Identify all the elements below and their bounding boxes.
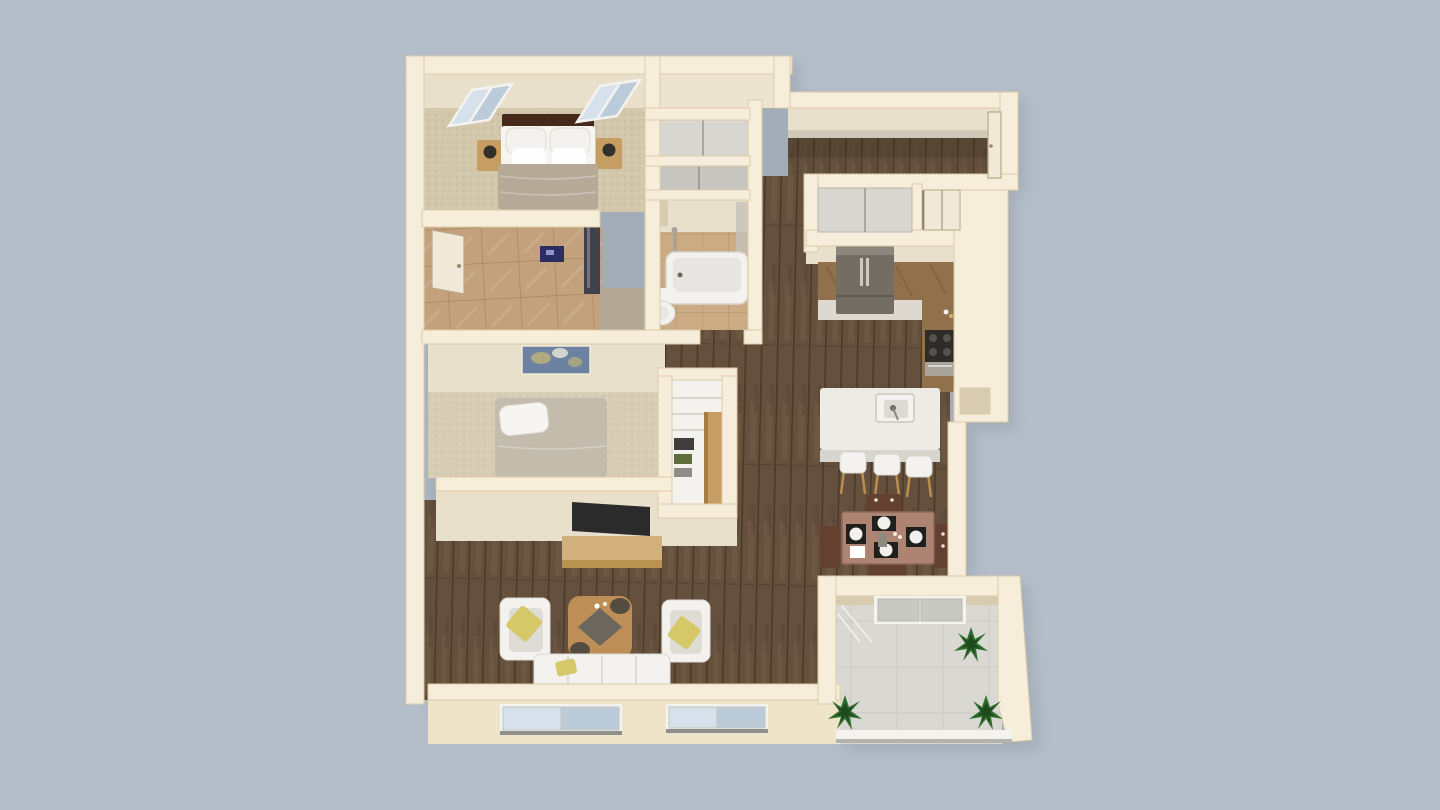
table-lamp-right: [603, 144, 616, 157]
wall-top-master: [406, 56, 792, 74]
clothes-dark: [674, 438, 694, 450]
wall-utility-east: [774, 56, 790, 108]
chair-knob: [941, 544, 945, 548]
wall-dining-east: [948, 422, 966, 584]
table-candle: [898, 535, 902, 539]
living-south-wall-face: [428, 700, 840, 744]
table-center-items: [878, 533, 887, 547]
candle-1: [594, 603, 599, 608]
wall-bedroom2-south: [436, 477, 672, 491]
living-window2-sill: [666, 729, 768, 733]
wall-dressing-south-b: [744, 330, 762, 344]
oven-front: [925, 362, 955, 376]
art-olive-blob2: [568, 357, 582, 367]
dining-chair-left: [820, 526, 840, 568]
clothes-green: [674, 454, 692, 464]
burner-2: [943, 334, 951, 342]
entry-hall-shadow: [788, 130, 1002, 158]
wall-niche: [960, 388, 990, 414]
chair-knob: [941, 532, 945, 536]
bath-nook-floor: [600, 288, 645, 332]
door-knob: [457, 264, 461, 268]
wall-master-dressing: [422, 210, 600, 227]
tall-cabinet-shade: [704, 412, 708, 512]
floor-plan-render: [0, 0, 1440, 810]
mirror-panel: [584, 222, 600, 294]
fridge-handle-left: [860, 258, 863, 286]
living-window1-sill: [500, 731, 622, 735]
stool-seat: [906, 456, 932, 477]
table-lamp-left: [484, 146, 497, 159]
counter-item-2: [949, 314, 953, 318]
wall-top-hall: [774, 92, 1018, 108]
burner-4: [943, 348, 951, 356]
wall-closet-hall-divider: [722, 376, 737, 516]
wall-closet2-south: [658, 504, 737, 518]
rug-corner-dark-1: [610, 598, 630, 614]
fridge-handle-right: [866, 258, 869, 286]
wall-left-exterior: [406, 56, 424, 704]
tub-faucet: [678, 273, 683, 278]
master-bed-blanket: [498, 164, 598, 210]
stool-seat: [874, 454, 900, 475]
master-pillow-small-left: [512, 148, 546, 166]
wall-closetblock-divider: [912, 184, 922, 236]
counter-item-1: [944, 310, 949, 315]
burner-3: [929, 348, 937, 356]
plate-top: [878, 517, 891, 530]
chair-knob: [874, 498, 878, 502]
chair-knob: [890, 498, 894, 502]
shower-head: [672, 227, 678, 233]
range-cooktop: [925, 330, 955, 362]
balcony-door-pane1: [878, 599, 919, 621]
balcony-door-pane2: [921, 599, 962, 621]
refrigerator: [836, 246, 894, 314]
balcony-railing-shadow: [836, 739, 1012, 743]
entry-door-knob: [989, 144, 993, 148]
entry-closets: [818, 188, 960, 232]
clothes-gray: [674, 468, 692, 477]
art-white-blob: [552, 348, 568, 358]
wall-closetA-top: [645, 108, 750, 120]
wall-bedroom2-closet-divider: [658, 376, 672, 516]
bathroom-mirror-strip: [736, 202, 748, 254]
living-window1-pane2: [561, 707, 619, 730]
bathtub-inner: [673, 258, 741, 292]
art-olive-blob: [531, 352, 551, 364]
balcony-railing: [836, 730, 1012, 739]
wall-balcony-west: [818, 576, 836, 704]
mirror-highlight: [587, 226, 590, 288]
second-bedroom-closet: [668, 380, 722, 512]
floor-plan-stage: [0, 0, 1440, 810]
wall-balcony-north: [818, 576, 1018, 596]
wall-dressing-south: [422, 330, 700, 344]
second-bedroom: [428, 392, 658, 478]
hall-closets: [650, 118, 748, 192]
living-window2-pane1: [669, 707, 717, 728]
living-window1-pane1: [503, 707, 561, 730]
plate-left: [850, 528, 863, 541]
burner-1: [929, 334, 937, 342]
entry-door-group: [988, 112, 1001, 178]
wall-bath-east: [748, 100, 762, 344]
wall-south-living: [428, 684, 840, 700]
wall-east-thick: [954, 190, 1008, 422]
plate-right: [910, 531, 923, 544]
napkin: [850, 546, 865, 558]
refrigerator-top: [836, 246, 894, 255]
stool-seat: [840, 452, 866, 473]
dressing-art-detail: [546, 250, 554, 255]
wall-closetA-bottom: [645, 156, 750, 166]
bathroom-door-threshold: [700, 330, 744, 346]
master-pillow-small-right: [552, 148, 586, 166]
wall-hall-east: [1000, 92, 1018, 184]
candle-2: [603, 602, 607, 606]
wall-bath-north: [645, 190, 750, 200]
bedroom2-pillow: [499, 402, 550, 437]
hall-strip-wood-floor: [737, 376, 762, 506]
table-candle: [893, 532, 897, 536]
closet2-south-wall-face: [658, 518, 737, 546]
media-console-front: [562, 560, 662, 568]
living-window2-pane2: [717, 707, 765, 728]
tv: [572, 502, 650, 536]
media-console: [562, 536, 662, 560]
dressing-door-leaf: [432, 230, 464, 294]
